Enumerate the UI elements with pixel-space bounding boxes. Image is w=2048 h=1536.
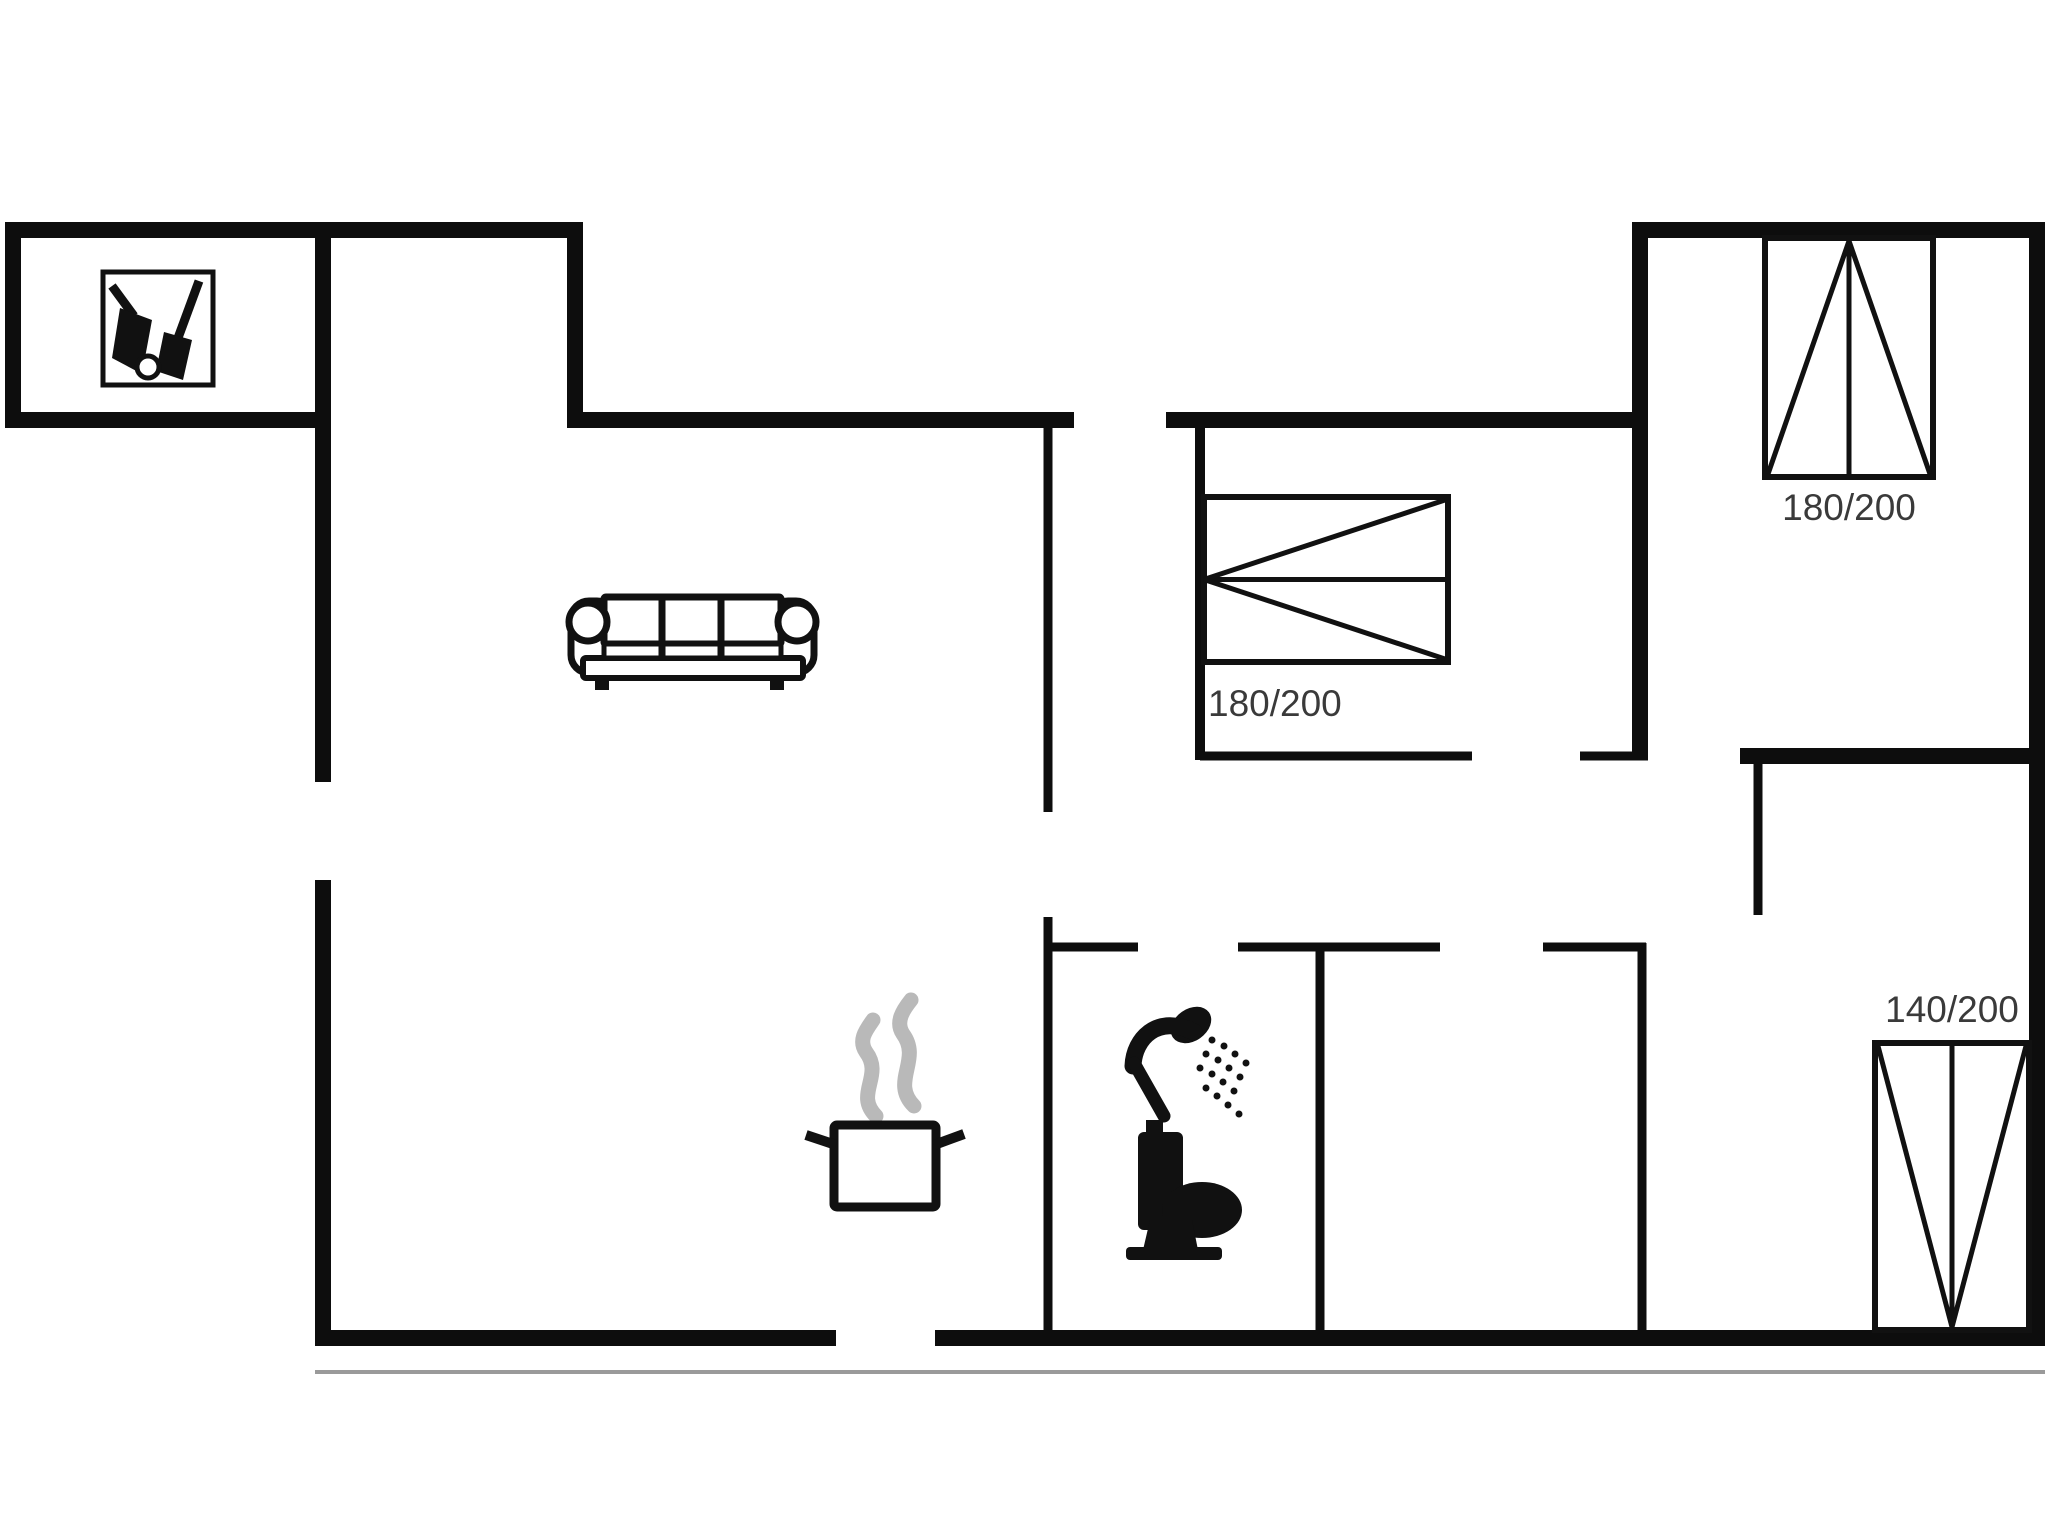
shower-icon-shape [1209,1037,1216,1044]
shower-icon-shape [1209,1071,1216,1078]
bed-bedroom-bottom-right: 140/200 [1875,989,2029,1330]
wall-segment [5,412,331,428]
sofa-icon-shape [569,603,607,641]
sofa-icon-shape [604,644,781,658]
sofa-icon-shape [583,658,803,678]
shower-icon-shape [1225,1102,1232,1109]
wall-segment [1316,943,1325,1343]
shower-icon-shape [1220,1079,1227,1086]
wall-segment [1543,943,1646,952]
wall-segment [5,222,583,238]
sofa-icon-shape [604,597,781,644]
wall-segment [1166,412,1648,428]
shower-icon-shape [1231,1088,1238,1095]
shower-icon-shape [1226,1065,1233,1072]
wall-segment [567,222,583,428]
bed-size-label: 180/200 [1208,683,1342,724]
floor-plan: 180/200180/200140/200 [0,0,2048,1536]
shower-icon-shape [1215,1057,1222,1064]
wall-segment [5,222,21,428]
shower-icon-shape [1232,1051,1239,1058]
wall-segment [1048,943,1138,952]
shower-icon-shape [1203,1051,1210,1058]
shower-icon-shape [1237,1074,1244,1081]
wall-segment [1044,420,1053,812]
cleaning-tools-icon-shape [137,356,159,378]
shower-icon-shape [1197,1065,1204,1072]
shower-icon-shape [1203,1085,1210,1092]
wall-segment [315,222,331,782]
toilet-icon-shape [1143,1220,1198,1250]
wall-segment [1754,752,1763,915]
wall-segment [1638,943,1647,1343]
wall-segment [315,1330,836,1346]
shower-icon-shape [1214,1093,1221,1100]
wall-segment [1740,748,2045,764]
shower-icon-shape [1221,1043,1228,1050]
wall-segment [1200,752,1472,761]
cooking-pot-icon-shape [834,1125,936,1207]
bed-size-label: 180/200 [1782,487,1916,528]
wall-segment [567,412,1074,428]
wall-segment [315,880,331,1346]
shower-icon-shape [1236,1111,1243,1118]
shower-icon-shape [1243,1060,1250,1067]
sofa-icon-shape [595,677,609,690]
floor-plan-canvas: 180/200180/200140/200 [0,0,2048,1536]
wall-segment [1238,943,1440,952]
sofa-icon-shape [778,603,816,641]
cleaning-tools-icon [103,272,213,385]
toilet-icon-shape [1126,1247,1222,1260]
wall-segment [1632,222,1648,760]
sofa-icon [569,597,816,690]
bed-size-label: 140/200 [1885,989,2019,1030]
wall-segment [1044,917,1053,1343]
sofa-icon-shape [770,677,784,690]
